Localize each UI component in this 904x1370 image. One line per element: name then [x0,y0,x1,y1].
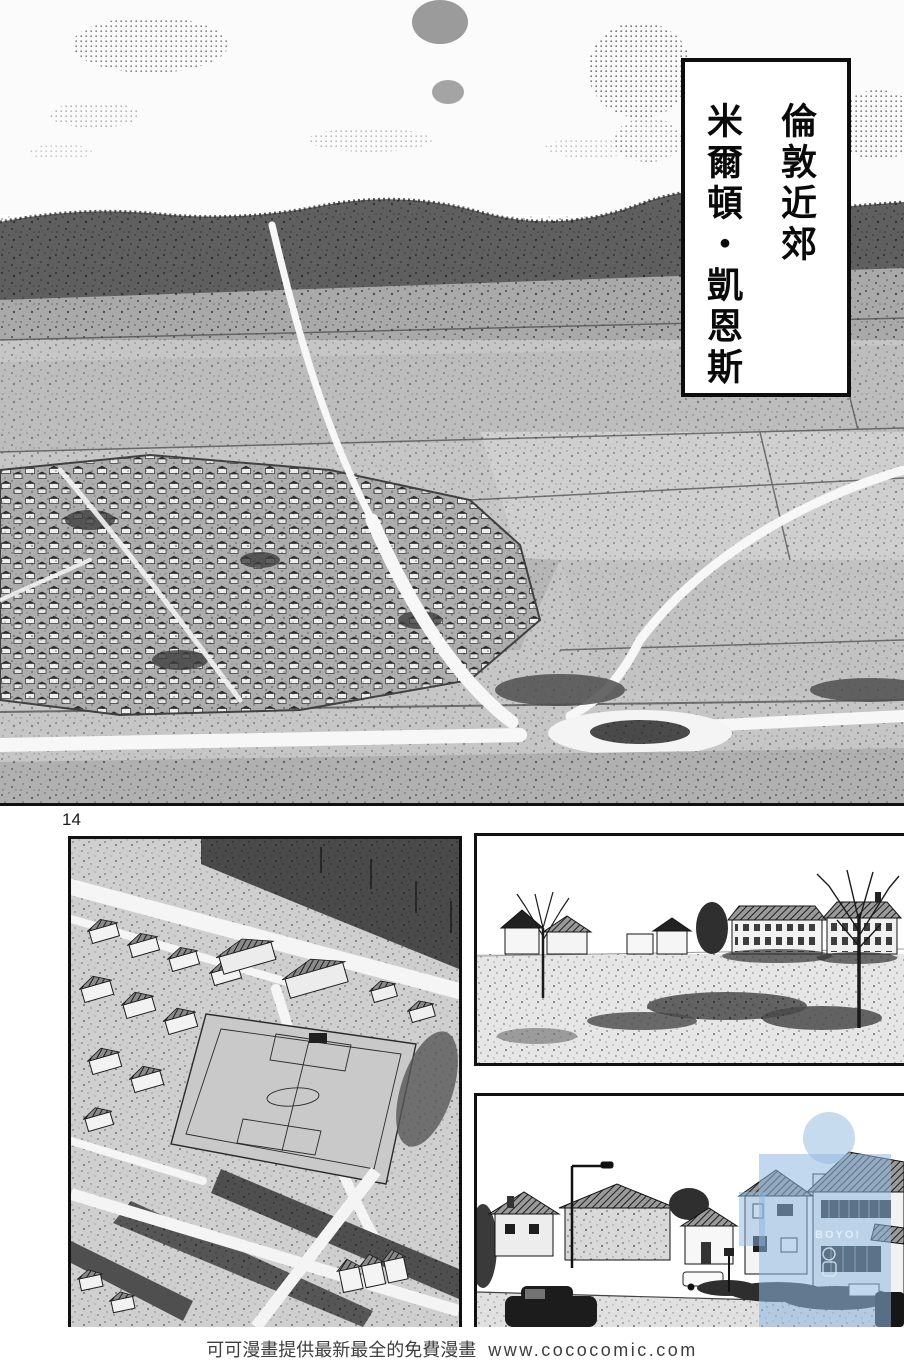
footer-site-text: 可可漫畫提供最新最全的免費漫畫 [206,1340,476,1360]
pitch-shed [309,1033,327,1043]
panel-field [474,833,904,1066]
watermark-text: BOYO! [815,1229,861,1241]
panel-street: BOYO! [474,1093,904,1327]
caption-box: 倫敦近郊 米爾頓・凱恩斯 [681,58,851,397]
caption-text: 倫敦近郊 米爾頓・凱恩斯 [685,62,837,393]
caption-line-1: 倫敦近郊 [759,102,833,393]
footer-site-url: www.cococomic.com [488,1340,698,1360]
manga-page: 倫敦近郊 米爾頓・凱恩斯 14 [0,0,904,1370]
page-number: 14 [62,810,81,830]
panel-estate-art [71,839,459,1327]
panel-field-art [477,836,904,1063]
footer: 可可漫畫提供最新最全的免費漫畫www.cococomic.com [0,1336,904,1362]
caption-line-2: 米爾頓・凱恩斯 [685,102,759,393]
panel-estate [68,836,462,1327]
panel-street-art: BOYO! [477,1096,904,1327]
